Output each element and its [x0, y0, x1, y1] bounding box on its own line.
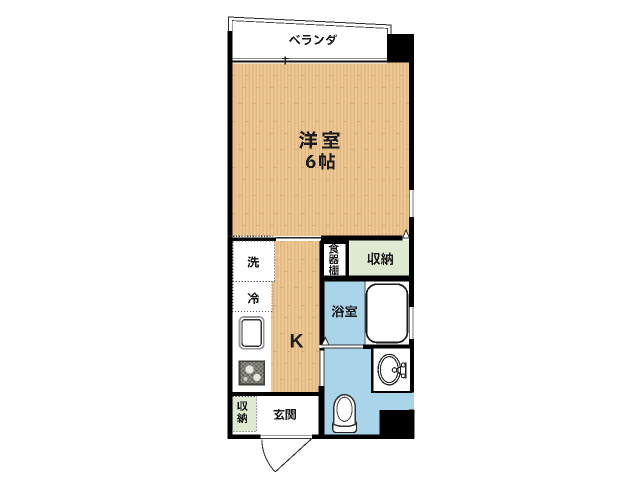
svg-text:K: K [290, 331, 304, 353]
